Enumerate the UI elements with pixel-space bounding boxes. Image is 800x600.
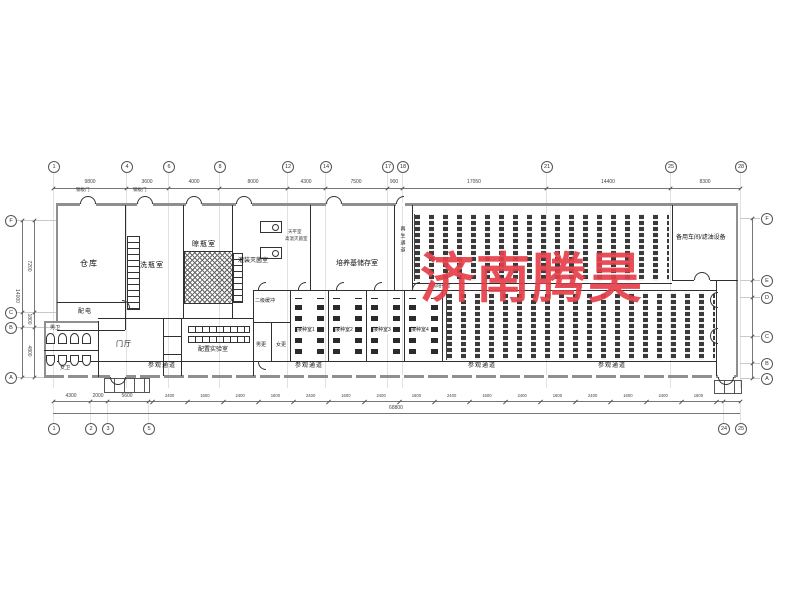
room-label-mens-wc: 男卫 (50, 326, 60, 332)
grid-bubble: 3 (102, 423, 114, 435)
dimension-label: 1600 (341, 393, 350, 398)
grid-bubble: A (5, 372, 17, 384)
dimension-label: 4300 (300, 179, 311, 185)
door-symbol (236, 196, 252, 204)
room-label-womens-change: 女更 (276, 343, 286, 349)
room-label-prep-lab: 配置实验室 (198, 347, 228, 354)
grid-bubble: 14 (320, 161, 332, 173)
room-label-spare-workshop: 备用车间/滤油设备 (676, 235, 726, 242)
dimension-label: 4800 (26, 345, 32, 356)
inoculation-benches (329, 292, 366, 360)
dimension-label: 2400 (306, 393, 315, 398)
partition (366, 290, 367, 362)
dimension-label: 1600 (553, 393, 562, 398)
grid-bubble: F (761, 213, 773, 225)
dimension-label: 9800 (84, 179, 95, 185)
grid-bubble: 1 (48, 423, 60, 435)
grid-line (90, 401, 91, 423)
toilet-fixture (46, 355, 55, 366)
grid-bubble: 8 (214, 161, 226, 173)
partition (232, 205, 233, 318)
dimension-label: 2400 (517, 393, 526, 398)
dimension-label: 2400 (588, 393, 597, 398)
room-label-warehouse: 仓库 (80, 260, 98, 269)
room-label-regen-corridor: 再生通道 (399, 226, 405, 254)
lab-bench (188, 326, 250, 333)
partition (98, 321, 99, 377)
grid-bubble: 17 (382, 161, 394, 173)
grid-bubble: 2 (85, 423, 97, 435)
corridor-label: 参观通道 (295, 363, 323, 370)
room-label-medium-storage: 培养基储存室 (336, 260, 378, 268)
toilet-fixture (70, 355, 79, 366)
grid-bubble: 1 (48, 161, 60, 173)
dimension-label: 1600 (482, 393, 491, 398)
grid-bubble: 28 (735, 161, 747, 173)
partition (271, 322, 272, 362)
dimension-label: 2400 (447, 393, 456, 398)
grid-line (53, 401, 54, 423)
partition (98, 318, 253, 319)
room-label-inoc3: 接种室3 (373, 328, 391, 334)
dimension-label: 8300 (699, 179, 710, 185)
partition (163, 354, 181, 355)
corridor-label: 参观通道 (468, 363, 496, 370)
dimension-line (53, 188, 740, 189)
dimension-line (22, 220, 23, 377)
dimension-label: 4300 (65, 393, 76, 399)
room-label-bottle-wash: 洗瓶室 (140, 262, 164, 270)
grid-bubble: A (761, 373, 773, 385)
room-label-entrance-hall: 门厅 (116, 341, 132, 349)
grid-line (148, 401, 149, 423)
partition (253, 290, 254, 376)
partition (672, 205, 673, 281)
room-label-filling: 灌装灭菌室 (238, 258, 268, 265)
toilet-fixture (70, 333, 79, 344)
dimension-label: 1800 (26, 313, 32, 324)
dimension-label: 1600 (694, 393, 703, 398)
dimension-label: 2400 (165, 393, 174, 398)
dimension-total-label: 68800 (389, 405, 403, 411)
dimension-label: 3600 (141, 179, 152, 185)
partition (412, 205, 413, 290)
dimension-label: 5600 (121, 393, 132, 399)
dimension-label: 17050 (467, 179, 481, 185)
door-symbol (298, 282, 306, 290)
toilet-fixture (46, 333, 55, 344)
grid-bubble: B (761, 358, 773, 370)
door-symbol (110, 377, 126, 385)
dimension-label: 2400 (235, 393, 244, 398)
dimension-label: 7200 (26, 260, 32, 271)
door-symbol (710, 328, 718, 344)
partition (183, 205, 184, 318)
dimension-label: 2400 (376, 393, 385, 398)
corridor-label: 参观通道 (598, 363, 626, 370)
partition (328, 290, 329, 362)
dimension-label: 900 (390, 179, 398, 185)
laminar-cabinet (260, 221, 282, 233)
door-symbol (137, 196, 153, 204)
grid-bubble: C (5, 307, 17, 319)
lab-bench (188, 336, 250, 343)
grid-bubble: E (761, 275, 773, 287)
dimension-label: 8000 (247, 179, 258, 185)
door-symbol (122, 300, 130, 308)
wall-left (56, 203, 58, 323)
wall-right (736, 203, 738, 377)
grid-line (740, 401, 741, 423)
grid-bubble: C (761, 331, 773, 343)
dimension-label: 1600 (200, 393, 209, 398)
partition (57, 302, 125, 303)
door-symbol (258, 362, 266, 370)
room-label-bottle-dry: 晾瓶室 (192, 241, 216, 249)
room-label-buffer2: 二级缓冲 (255, 299, 275, 305)
partition (44, 350, 98, 351)
dimension-label: 4000 (188, 179, 199, 185)
watermark-text: 济南腾昊 (420, 252, 644, 306)
plan-sheet: 仓库 洗瓶室 晾瓶室 灌装灭菌室 天平室 高温灭菌室 培养基储存室 再生通道 备… (0, 0, 800, 600)
partition (181, 318, 182, 376)
wall-annex-top (44, 321, 98, 323)
grid-bubble: 5 (143, 423, 155, 435)
inoculation-benches (291, 292, 328, 360)
room-label-inoc4: 接种室4 (411, 328, 429, 334)
door-symbol (336, 282, 344, 290)
partition (394, 205, 395, 290)
drying-rack-hatch (184, 251, 233, 304)
door-symbol (374, 282, 382, 290)
door-symbol (718, 377, 734, 385)
door-symbol (412, 282, 420, 290)
grid-bubble: B (5, 322, 17, 334)
dimension-label: 1600 (412, 393, 421, 398)
room-label-mens-change: 男更 (256, 343, 266, 349)
dimension-label: 14400 (601, 179, 615, 185)
toilet-fixture (58, 333, 67, 344)
grid-bubble: F (5, 215, 17, 227)
room-label-inoc2: 接种室2 (335, 328, 353, 334)
toilet-fixture (82, 333, 91, 344)
dimension-line (53, 413, 740, 414)
toilet-fixture (82, 355, 91, 366)
grid-bubble: 12 (282, 161, 294, 173)
grid-line (107, 401, 108, 423)
partition (57, 361, 716, 362)
grid-bubble: 6 (163, 161, 175, 173)
steel-door-label: 钢板门 (133, 188, 147, 193)
door-symbol (710, 292, 718, 308)
door-symbol (694, 272, 710, 280)
grid-line (723, 401, 724, 423)
steel-door-label: 钢板门 (76, 188, 90, 193)
door-symbol (80, 196, 96, 204)
grid-bubble: D (761, 292, 773, 304)
partition (290, 290, 291, 362)
corridor-label: 参观通道 (148, 363, 176, 370)
partition (125, 205, 126, 330)
inoculation-benches (367, 292, 404, 360)
room-label-balance: 天平室 (288, 230, 302, 235)
dimension-label: 1600 (623, 393, 632, 398)
door-symbol (326, 196, 342, 204)
room-label-power: 配电 (78, 309, 92, 316)
partition (163, 336, 181, 337)
dimension-label: 1600 (271, 393, 280, 398)
room-label-womens-wc: 女卫 (60, 366, 70, 372)
bottle-rack (127, 236, 140, 310)
door-symbol (186, 196, 202, 204)
grid-bubble: 18 (397, 161, 409, 173)
dimension-line (53, 401, 740, 402)
dimension-label: 2400 (658, 393, 667, 398)
partition (57, 330, 125, 331)
dimension-label: 2000 (92, 393, 103, 399)
wall-bottom (44, 375, 739, 378)
grid-bubble: 4 (121, 161, 133, 173)
partition (404, 290, 405, 362)
room-label-autoclave: 高温灭菌室 (285, 237, 308, 242)
grid-bubble: 25 (735, 423, 747, 435)
door-symbol (258, 282, 266, 290)
dimension-label: 7500 (350, 179, 361, 185)
grid-bubble: 24 (718, 423, 730, 435)
partition (310, 205, 311, 290)
grid-bubble: 25 (665, 161, 677, 173)
wall-annex-left (44, 321, 46, 377)
door-symbol (396, 196, 404, 204)
room-label-inoc1: 接种室1 (297, 328, 315, 334)
dimension-total-label: 14000 (14, 289, 20, 303)
dimension-line (34, 220, 35, 377)
grid-bubble: 21 (541, 161, 553, 173)
partition (253, 322, 290, 323)
